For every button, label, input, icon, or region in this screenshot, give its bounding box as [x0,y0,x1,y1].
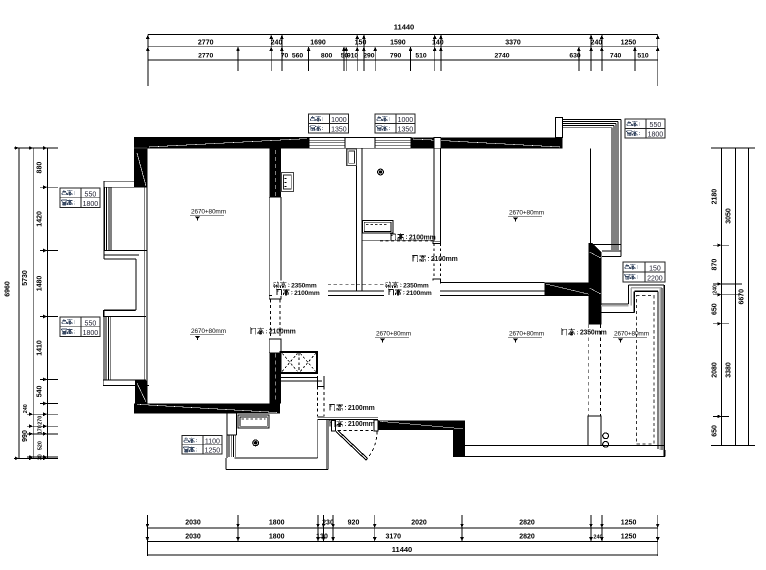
svg-text:550: 550 [85,191,97,198]
svg-text:2820: 2820 [519,520,535,527]
svg-text:1420: 1420 [37,211,44,227]
svg-text:290: 290 [363,53,375,60]
svg-text:880: 880 [37,162,44,174]
svg-text:790: 790 [390,53,402,60]
svg-text:510: 510 [415,53,427,60]
svg-text:550: 550 [85,320,97,327]
svg-text:1250: 1250 [621,534,637,541]
svg-text:2770: 2770 [198,39,214,46]
svg-text:1800: 1800 [648,131,664,138]
svg-text:1800: 1800 [269,520,285,527]
svg-text:2100mm: 2100mm [348,405,375,412]
svg-text:1800: 1800 [83,201,99,208]
svg-text:240: 240 [23,404,29,413]
svg-text:990: 990 [22,430,29,442]
svg-text:5730: 5730 [22,270,29,286]
svg-text:1410: 1410 [37,340,44,356]
svg-text:650: 650 [712,425,719,437]
svg-text:2100mm: 2100mm [294,290,320,297]
svg-text:1800: 1800 [83,330,99,337]
svg-text:2670+80mm: 2670+80mm [614,331,649,338]
svg-text:520: 520 [38,441,44,450]
svg-text:11440: 11440 [392,545,412,554]
svg-text:540: 540 [37,385,44,397]
svg-text:170: 170 [38,425,44,434]
svg-text:2670+80mm: 2670+80mm [509,210,544,217]
svg-text:3370: 3370 [505,39,521,46]
svg-text:2080: 2080 [712,362,719,378]
svg-text:1250: 1250 [205,447,221,454]
svg-text:240: 240 [271,39,283,46]
svg-text:1350: 1350 [331,126,347,133]
svg-text:2820: 2820 [519,534,535,541]
svg-text:870: 870 [712,259,719,271]
svg-text:1800: 1800 [269,534,285,541]
svg-text:1250: 1250 [621,520,637,527]
svg-text:2770: 2770 [198,53,213,60]
svg-text:740: 740 [610,53,622,60]
svg-text:1590: 1590 [390,39,406,46]
svg-text:1350: 1350 [398,126,414,133]
svg-text:510: 510 [637,53,649,60]
svg-text:240: 240 [591,39,603,46]
svg-text:150: 150 [649,266,661,273]
svg-text:2670+80mm: 2670+80mm [191,209,226,216]
svg-text:1480: 1480 [37,276,44,292]
svg-text:2100mm: 2100mm [269,329,296,336]
svg-text:3050: 3050 [726,208,733,224]
svg-text:270: 270 [38,416,44,425]
svg-text:30: 30 [38,454,44,460]
svg-text:1690: 1690 [310,39,326,46]
svg-text:3380: 3380 [726,362,733,378]
svg-text:2740: 2740 [494,53,509,60]
svg-text:910: 910 [347,53,359,60]
svg-text:2670+80mm: 2670+80mm [191,328,226,335]
svg-text:140: 140 [432,39,444,46]
svg-text:11440: 11440 [394,23,414,32]
svg-text:6960: 6960 [5,281,12,297]
svg-text:240: 240 [713,285,719,294]
svg-text:920: 920 [348,520,360,527]
svg-text:2030: 2030 [185,534,201,541]
svg-text:2100mm: 2100mm [348,421,375,428]
svg-text:1250: 1250 [621,39,637,46]
svg-text:150: 150 [355,39,367,46]
svg-text:560: 560 [292,53,304,60]
svg-text:2100mm: 2100mm [431,256,458,263]
svg-text:1000: 1000 [398,117,414,124]
svg-text:1100: 1100 [205,438,220,445]
svg-text:2350mm: 2350mm [403,282,429,289]
svg-text:2350mm: 2350mm [291,282,317,289]
svg-text:2200: 2200 [647,275,663,282]
svg-text:2670+80mm: 2670+80mm [509,331,544,338]
svg-text:2180: 2180 [712,189,719,205]
svg-text:1000: 1000 [331,117,347,124]
svg-text:2030: 2030 [185,520,201,527]
svg-text:650: 650 [712,303,719,315]
svg-text:800: 800 [321,53,333,60]
svg-text:3170: 3170 [386,534,402,541]
svg-text:2670+80mm: 2670+80mm [376,331,411,338]
svg-text:2100mm: 2100mm [409,234,436,241]
svg-text:2350mm: 2350mm [580,330,607,337]
svg-text:2100mm: 2100mm [406,290,432,297]
svg-text:6670: 6670 [739,289,746,305]
svg-text:2020: 2020 [411,520,427,527]
svg-text:550: 550 [650,122,662,129]
